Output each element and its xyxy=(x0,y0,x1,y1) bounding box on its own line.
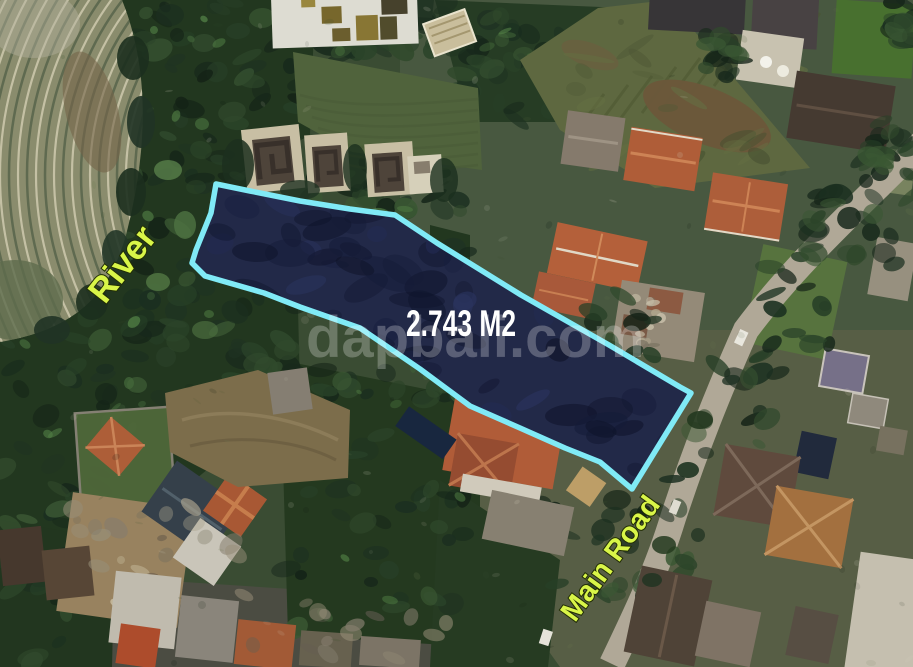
svg-text:2.743 M2: 2.743 M2 xyxy=(406,303,516,344)
